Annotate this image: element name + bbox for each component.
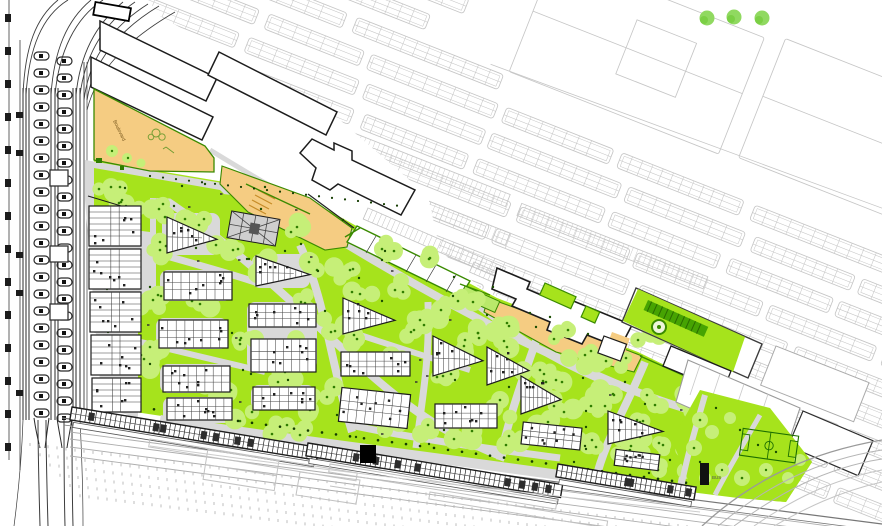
- svg-text:BUS: BUS: [712, 475, 721, 480]
